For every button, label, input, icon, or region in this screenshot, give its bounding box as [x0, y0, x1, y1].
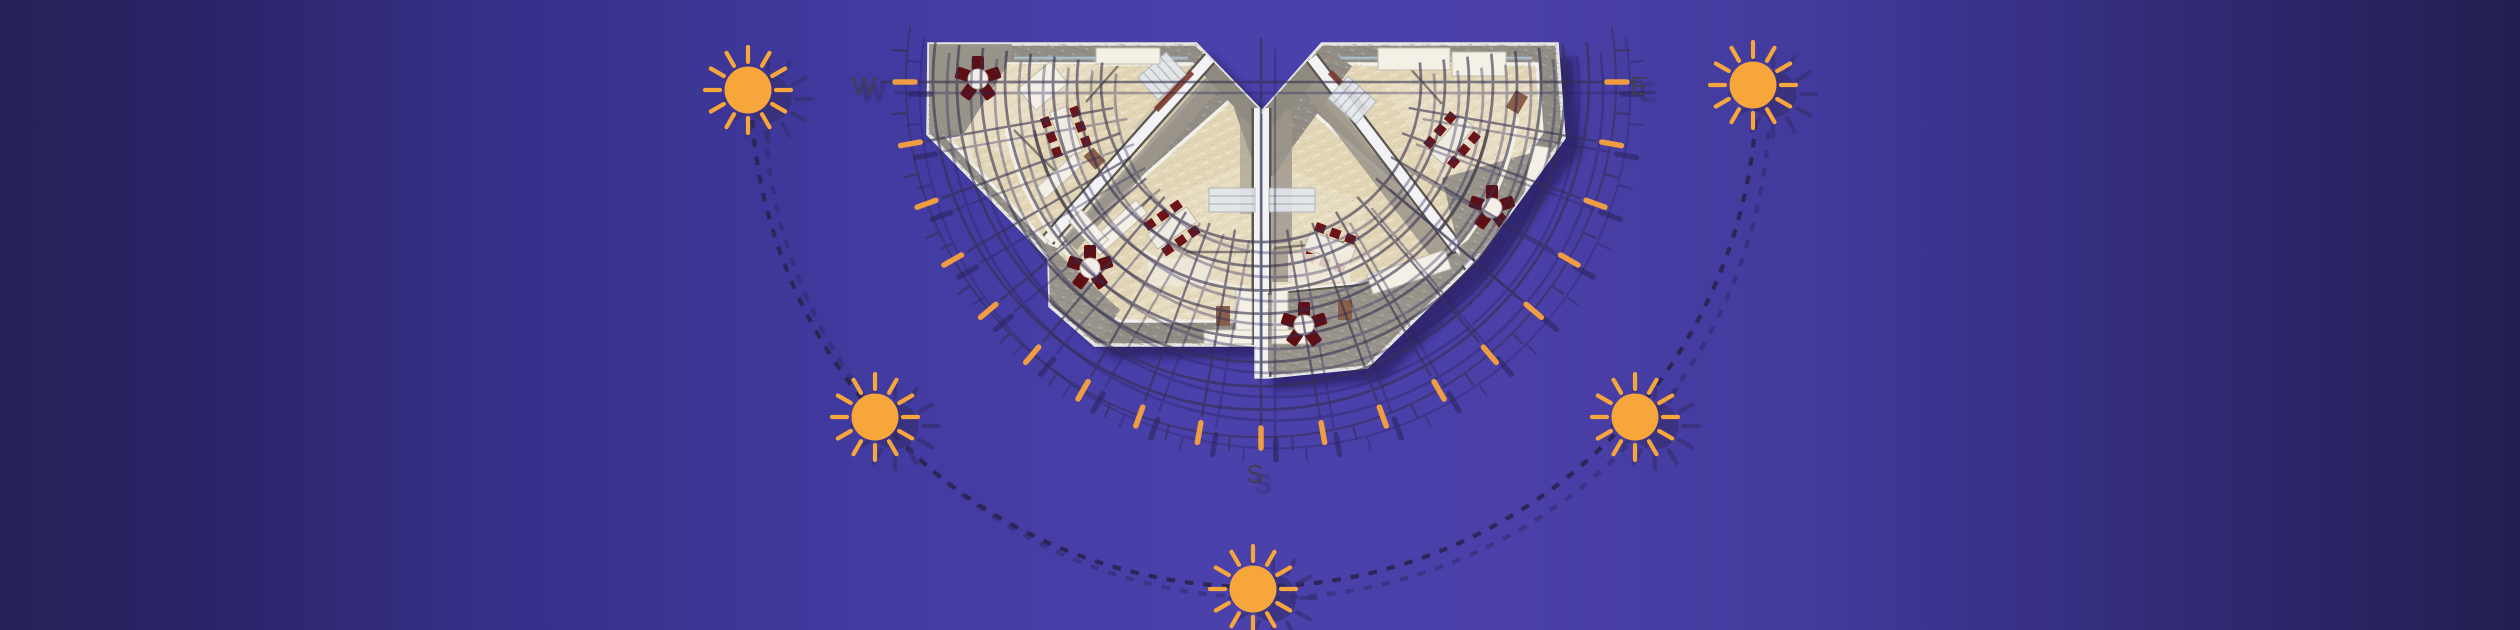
svg-text:W: W [852, 71, 877, 101]
svg-text:E: E [1630, 71, 1647, 101]
svg-text:S: S [1246, 459, 1263, 489]
